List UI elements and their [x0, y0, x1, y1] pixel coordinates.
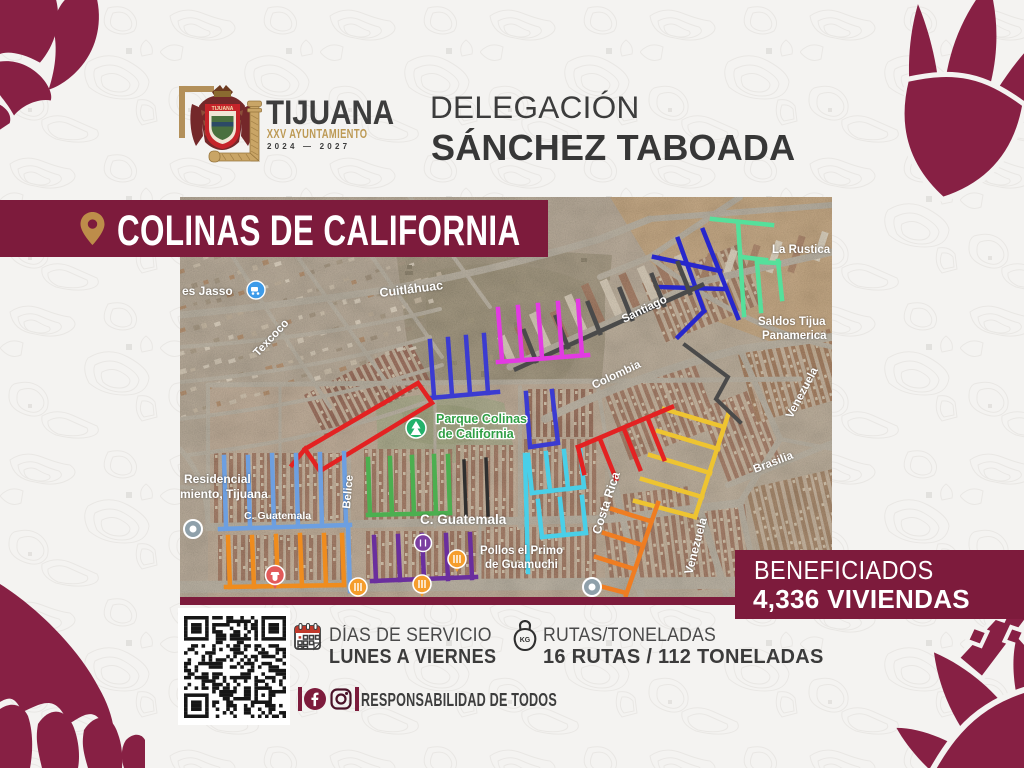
- svg-text:de California: de California: [438, 427, 515, 441]
- svg-text:Parque Colinas: Parque Colinas: [436, 412, 527, 426]
- svg-text:miento, Tijuana: miento, Tijuana: [180, 487, 268, 501]
- svg-text:XXV AYUNTAMIENTO: XXV AYUNTAMIENTO: [267, 128, 368, 142]
- svg-text:Pollos el Primo: Pollos el Primo: [480, 545, 563, 557]
- svg-text:C. Guatemala: C. Guatemala: [420, 512, 507, 527]
- svg-text:Residencial: Residencial: [184, 472, 251, 486]
- svg-text:es Jasso: es Jasso: [182, 284, 233, 298]
- svg-text:TIJUANA: TIJUANA: [212, 106, 234, 112]
- svg-text:2024 — 2027: 2024 — 2027: [267, 142, 350, 151]
- svg-text:Saldos Tijua: Saldos Tijua: [758, 316, 826, 328]
- svg-text:Panamerica: Panamerica: [762, 330, 827, 342]
- svg-text:TIJUANA: TIJUANA: [266, 93, 394, 131]
- svg-text:La Rustica: La Rustica: [772, 244, 831, 256]
- svg-text:C. Guatemala: C. Guatemala: [244, 510, 311, 522]
- svg-text:de Guamuchi: de Guamuchi: [485, 559, 558, 571]
- svg-text:KG: KG: [520, 637, 531, 644]
